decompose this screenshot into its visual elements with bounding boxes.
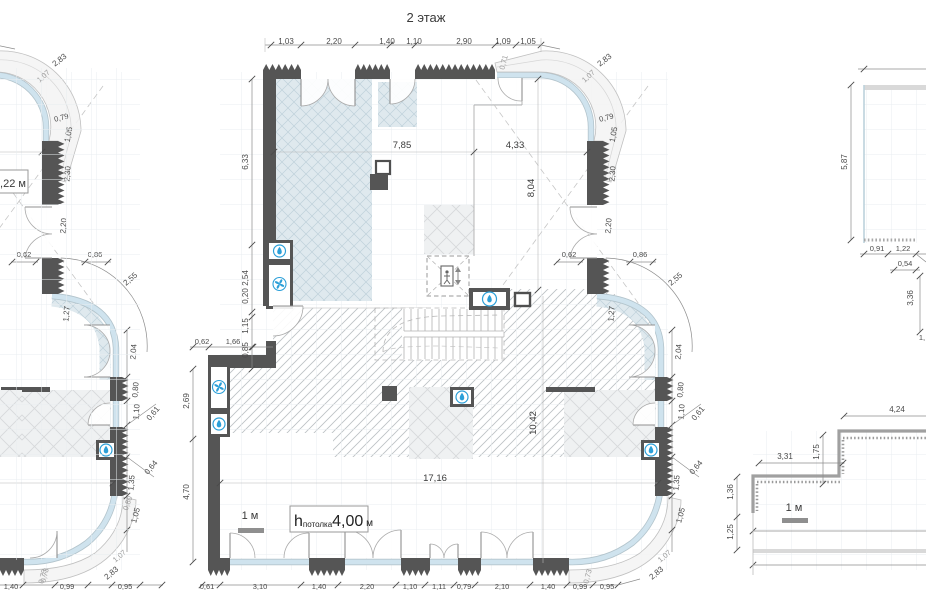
svg-text:0,62: 0,62 xyxy=(195,337,210,346)
svg-text:0,95: 0,95 xyxy=(600,582,615,591)
svg-text:1,22: 1,22 xyxy=(896,244,911,253)
svg-text:1,10: 1,10 xyxy=(406,37,422,46)
svg-text:1 м: 1 м xyxy=(242,510,259,522)
svg-text:8,04: 8,04 xyxy=(526,179,537,198)
svg-text:,22 м: ,22 м xyxy=(0,178,26,190)
svg-text:6,33: 6,33 xyxy=(241,154,250,170)
svg-text:0,80: 0,80 xyxy=(675,381,685,398)
svg-text:1,40: 1,40 xyxy=(4,582,19,591)
svg-text:2,69: 2,69 xyxy=(182,393,191,409)
svg-text:0,61: 0,61 xyxy=(690,404,707,422)
svg-text:0,79: 0,79 xyxy=(457,582,472,591)
svg-text:0,64: 0,64 xyxy=(688,458,705,476)
svg-text:1,09: 1,09 xyxy=(495,37,511,46)
svg-text:10,42: 10,42 xyxy=(528,411,539,435)
svg-text:1,10: 1,10 xyxy=(676,403,686,420)
svg-text:0,61: 0,61 xyxy=(200,582,215,591)
svg-text:1,03: 1,03 xyxy=(278,37,294,46)
svg-text:4,24: 4,24 xyxy=(889,405,905,414)
svg-text:1,11: 1,11 xyxy=(432,582,446,591)
svg-text:0,99: 0,99 xyxy=(60,582,75,591)
svg-text:1,75: 1,75 xyxy=(812,444,821,460)
svg-text:17,16: 17,16 xyxy=(423,473,447,484)
svg-text:1 м: 1 м xyxy=(786,502,803,514)
svg-text:2,20: 2,20 xyxy=(603,217,613,234)
svg-text:1,15: 1,15 xyxy=(241,318,250,334)
svg-text:3,10: 3,10 xyxy=(253,582,268,591)
svg-text:3,31: 3,31 xyxy=(777,452,793,461)
svg-text:0,91: 0,91 xyxy=(870,244,885,253)
svg-text:2,30: 2,30 xyxy=(607,165,617,182)
svg-text:7,85: 7,85 xyxy=(393,140,412,151)
svg-text:2,04: 2,04 xyxy=(673,343,683,360)
svg-text:5,87: 5,87 xyxy=(840,154,849,170)
svg-text:1,40: 1,40 xyxy=(379,37,395,46)
svg-text:0,86: 0,86 xyxy=(633,250,648,259)
svg-text:1,10: 1,10 xyxy=(403,582,418,591)
svg-text:2,90: 2,90 xyxy=(456,37,472,46)
svg-text:0,54: 0,54 xyxy=(898,259,913,268)
svg-text:1,27: 1,27 xyxy=(606,305,616,322)
svg-text:2,54: 2,54 xyxy=(241,270,250,286)
svg-text:3,36: 3,36 xyxy=(906,290,915,306)
svg-text:4,70: 4,70 xyxy=(182,484,191,500)
svg-text:2,10: 2,10 xyxy=(495,582,510,591)
svg-text:0,85: 0,85 xyxy=(241,342,250,358)
svg-text:0,99: 0,99 xyxy=(573,582,588,591)
svg-text:2,55: 2,55 xyxy=(667,270,685,287)
svg-text:2,83: 2,83 xyxy=(596,51,614,68)
svg-text:1,25: 1,25 xyxy=(726,524,735,540)
svg-text:1,: 1, xyxy=(919,333,925,342)
svg-text:2,20: 2,20 xyxy=(326,37,342,46)
svg-text:2 этаж: 2 этаж xyxy=(407,10,446,25)
svg-text:1,40: 1,40 xyxy=(541,582,556,591)
svg-text:1,36: 1,36 xyxy=(726,484,735,500)
svg-text:2,20: 2,20 xyxy=(360,582,375,591)
svg-text:1,35: 1,35 xyxy=(671,474,681,491)
svg-text:4,33: 4,33 xyxy=(506,140,525,151)
svg-text:1,40: 1,40 xyxy=(312,582,327,591)
svg-text:0,20: 0,20 xyxy=(241,288,250,304)
svg-text:0,95: 0,95 xyxy=(118,582,133,591)
svg-text:1,05: 1,05 xyxy=(520,37,536,46)
svg-text:1,66: 1,66 xyxy=(226,337,241,346)
svg-text:0,62: 0,62 xyxy=(562,250,577,259)
